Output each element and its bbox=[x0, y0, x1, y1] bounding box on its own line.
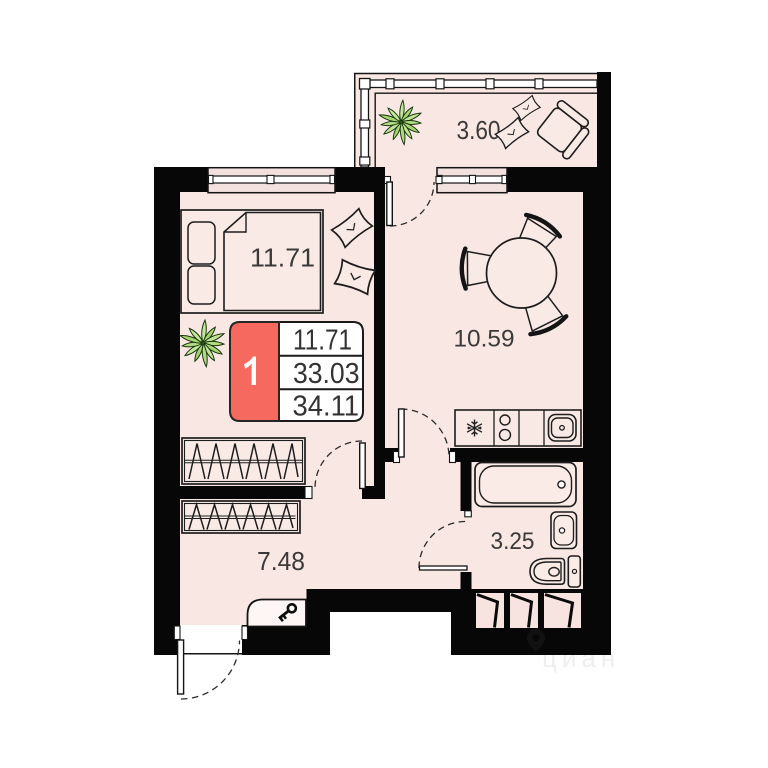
svg-text:34.11: 34.11 bbox=[293, 391, 360, 423]
svg-text:7.48: 7.48 bbox=[257, 546, 305, 576]
svg-text:33.03: 33.03 bbox=[293, 358, 360, 390]
svg-text:3.60: 3.60 bbox=[457, 115, 501, 145]
svg-text:10.59: 10.59 bbox=[454, 326, 515, 353]
svg-text:11.71: 11.71 bbox=[293, 325, 352, 357]
svg-text:3.25: 3.25 bbox=[491, 528, 535, 555]
svg-text:11.71: 11.71 bbox=[250, 243, 315, 273]
